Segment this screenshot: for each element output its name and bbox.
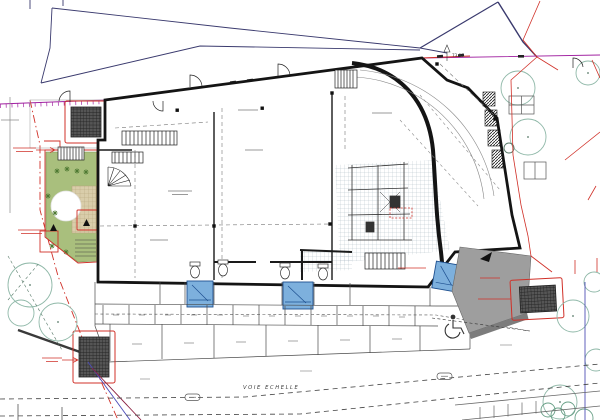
stair-secondary [112,152,143,163]
stair-southeast [365,253,405,269]
west-survey-line [1,97,19,213]
building [98,58,520,287]
gate-arc-west [59,91,70,102]
east-boundary-red [511,1,600,274]
stair-north [335,70,357,88]
garden-stair [58,147,84,160]
stair-main [122,131,177,145]
street-name-label: VOIE ECHELLE [243,385,299,391]
floor-plan-page: 73.97 [0,0,600,420]
floor-plan-drawing: 73.97 [0,0,600,420]
wheelchair-icon [445,315,464,338]
site-boundary-lines [30,0,537,83]
garden-tree [51,191,81,221]
level-marker: 73.97 [444,45,464,61]
equipment-box-southwest [18,330,141,420]
level-marker-value: 73.97 [452,53,464,58]
